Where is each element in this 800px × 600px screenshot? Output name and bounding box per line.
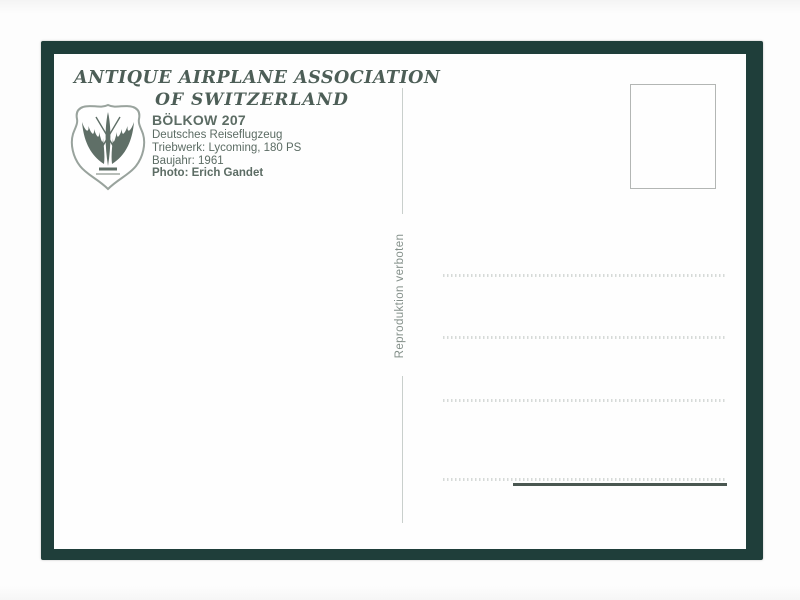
address-line — [443, 478, 727, 481]
aircraft-details: BÖLKOW 207 Deutsches Reiseflugzeug Trieb… — [152, 113, 301, 180]
aircraft-detail-line: Deutsches Reiseflugzeug — [152, 129, 301, 142]
scan-background: ANTIQUE AIRPLANE ASSOCIATION OF SWITZERL… — [0, 0, 800, 600]
postcard-frame: ANTIQUE AIRPLANE ASSOCIATION OF SWITZERL… — [41, 41, 763, 560]
stamp-box — [630, 84, 716, 189]
reproduction-notice: Reproduktion verboten — [394, 234, 406, 359]
center-divider-bottom — [402, 376, 403, 523]
address-underline — [513, 483, 727, 486]
postcard-back: ANTIQUE AIRPLANE ASSOCIATION OF SWITZERL… — [54, 54, 746, 549]
address-line — [443, 274, 727, 277]
aircraft-title: BÖLKOW 207 — [152, 113, 301, 128]
center-divider-top — [402, 88, 403, 214]
address-line — [443, 399, 727, 402]
aircraft-detail-line: Triebwerk: Lycoming, 180 PS — [152, 142, 301, 155]
aircraft-detail-line: Baujahr: 1961 — [152, 155, 301, 168]
association-crest-icon — [66, 100, 150, 193]
photo-credit: Photo: Erich Gandet — [152, 167, 301, 180]
address-line — [443, 336, 727, 339]
association-name-line1: ANTIQUE AIRPLANE ASSOCIATION — [74, 68, 404, 88]
